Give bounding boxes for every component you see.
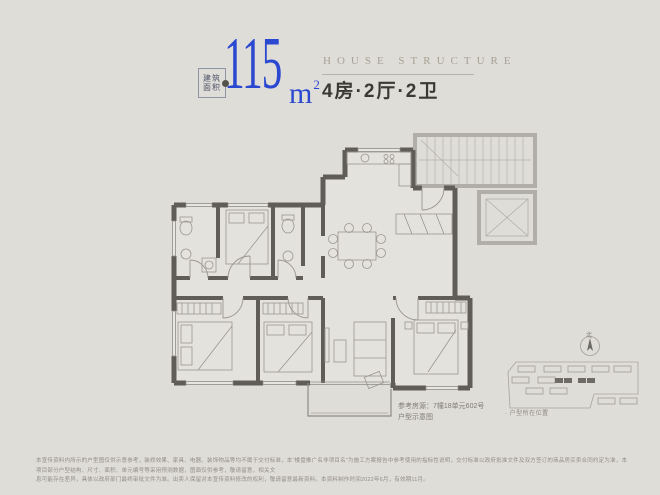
elevator [479, 192, 535, 243]
disclaimer-line1: 本宣传资料内所示的户型图仅供示意参考，装修效果、家具、电器、装饰物品等均不属于交… [36, 457, 632, 476]
poster-page: 建筑 面积 115 m2 HOUSE STRUCTURE 4房·2厅·2卫 [0, 0, 660, 495]
floor-plan-svg [128, 126, 552, 442]
area-value: 115 [224, 28, 281, 100]
area-unit-m: m [289, 77, 312, 110]
plan-caption: 参考房源：7幢18单元602号 户型示意图 [398, 401, 484, 423]
area-unit-sup: 2 [313, 77, 320, 92]
north-arrow-icon [581, 337, 600, 356]
site-buildings [512, 366, 637, 404]
balcony [308, 383, 391, 416]
north-label: 北 [586, 330, 592, 339]
site-outline [508, 362, 638, 408]
area-badge-line2: 面积 [203, 83, 221, 92]
plan-caption-type: 户型示意图 [398, 412, 484, 423]
disclaimer-line2: 息可能存在差异，具体以政府部门最终审批文件为准。出卖人保留对本宣传资料修改的权利… [36, 476, 632, 486]
site-map-svg [500, 330, 650, 415]
sitemap-caption: · 户型所在位置 [505, 408, 549, 417]
stairwell [415, 135, 535, 186]
area-badge-line1: 建筑 [203, 74, 221, 83]
subtitle-divider [322, 74, 474, 75]
subtitle-english: HOUSE STRUCTURE [323, 55, 517, 67]
layout-title: 4房·2厅·2卫 [322, 76, 439, 103]
site-highlighted-buildings [555, 378, 595, 383]
plan-caption-ref: 参考房源：7幢18单元602号 [398, 401, 484, 412]
disclaimer: 本宣传资料内所示的户型图仅供示意参考，装修效果、家具、电器、装饰物品等均不属于交… [36, 457, 632, 486]
area-unit: m2 [289, 70, 320, 109]
area-badge: 建筑 面积 [198, 68, 226, 98]
